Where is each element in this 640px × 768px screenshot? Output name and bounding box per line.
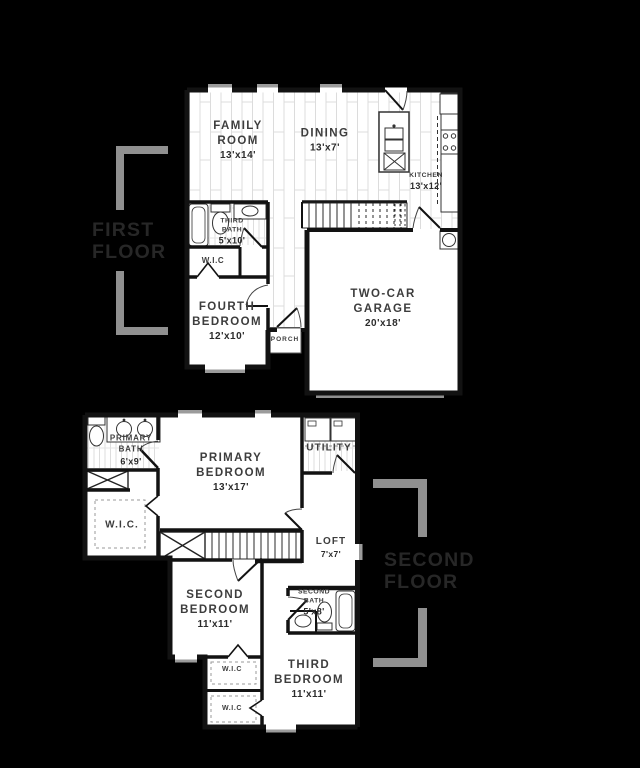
window — [178, 410, 202, 414]
garage-door-sill — [316, 396, 444, 399]
window — [175, 660, 197, 663]
linen-closet — [87, 471, 128, 489]
second-floor-tag: SECOND FLOOR — [384, 549, 475, 593]
room-label-loft: LOFT 7'x7' — [301, 535, 361, 559]
window — [320, 84, 342, 88]
room-label-primary-bedroom: PRIMARY BEDROOM 13'x17' — [181, 451, 281, 493]
stair-closet — [160, 532, 205, 559]
window — [257, 84, 278, 88]
water-heater-icon — [440, 231, 458, 249]
room-label-wic-primary: W.I.C. — [92, 519, 152, 532]
bathtub-icon — [189, 204, 208, 246]
room-label-wic-second: W.I.C — [207, 666, 257, 674]
room-label-second-bedroom: SECOND BEDROOM 11'x11' — [168, 588, 263, 630]
room-label-kitchen: KITCHEN 13'x12' — [396, 171, 456, 191]
room-label-garage: TWO-CAR GARAGE 20'x18' — [328, 287, 438, 329]
room-label-utility: UTILITY — [299, 442, 359, 455]
room-label-wic-third: W.I.C — [207, 705, 257, 713]
first-floor-tag: FIRST FLOOR — [92, 219, 166, 263]
room-label-primary-bath: PRIMARY BATH 6'x9' — [103, 434, 159, 467]
window — [266, 730, 296, 733]
window — [255, 410, 271, 414]
window — [208, 84, 232, 88]
room-label-fourth-bedroom: FOURTH BEDROOM 12'x10' — [180, 300, 275, 342]
stairs — [205, 532, 302, 562]
room-label-third-bath: THIRD BATH 5'x10' — [212, 216, 252, 245]
floor-plan-canvas — [0, 0, 640, 768]
room-label-wic-first: W.I.C — [188, 256, 238, 266]
sink-icon — [295, 615, 311, 627]
refrigerator-icon — [440, 94, 458, 114]
kitchen-island-icon — [379, 112, 409, 172]
room-label-porch: PORCH — [265, 336, 305, 344]
room-label-family-room: FAMILY ROOM 13'x14' — [202, 119, 274, 161]
room-label-third-bedroom: THIRD BEDROOM 11'x11' — [262, 658, 357, 700]
bathtub-icon — [336, 591, 355, 631]
stairs — [302, 202, 407, 229]
range-icon — [441, 130, 458, 154]
window — [205, 370, 245, 374]
room-label-dining: DINING 13'x7' — [275, 127, 375, 154]
room-label-second-bath: SECOND BATH 5'x8' — [292, 587, 336, 616]
floor-plan-page: FIRST FLOOR SECOND FLOOR FAMILY ROOM 13'… — [0, 0, 640, 768]
